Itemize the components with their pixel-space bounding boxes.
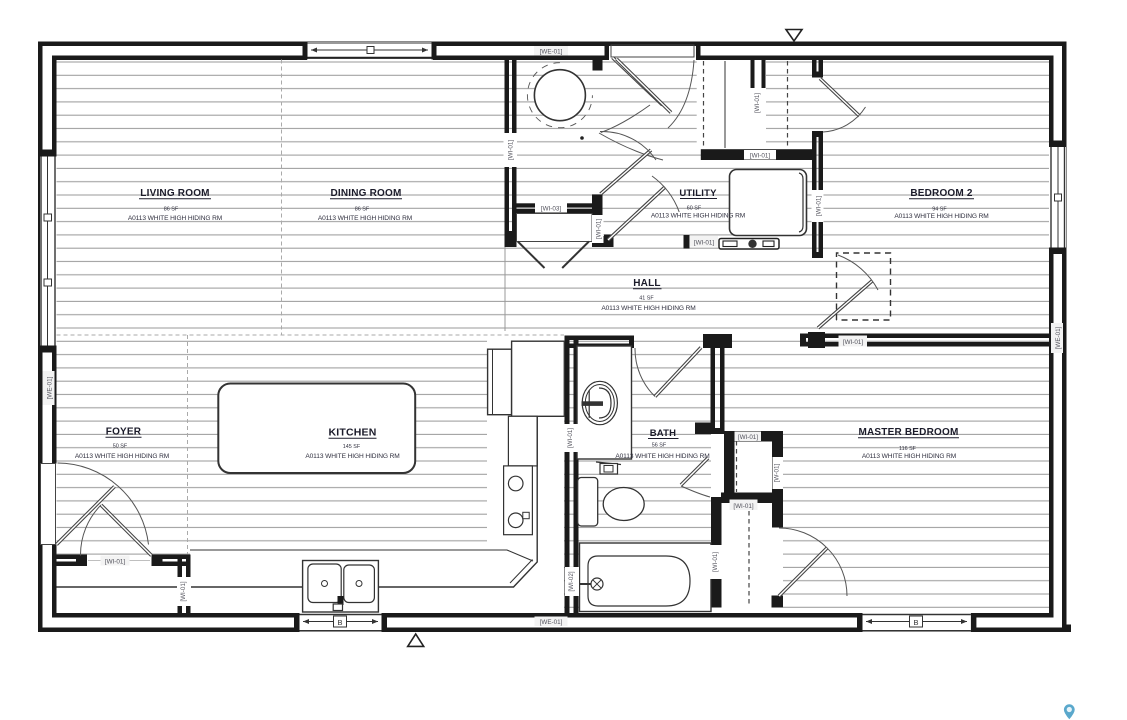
svg-text:A0113 WHITE HIGH HIDING RM: A0113 WHITE HIGH HIDING RM [75, 453, 169, 460]
svg-text:KITCHEN: KITCHEN [328, 427, 376, 439]
svg-text:A0113 WHITE HIGH HIDING RM: A0113 WHITE HIGH HIDING RM [305, 453, 399, 460]
svg-text:UTILITY: UTILITY [679, 188, 717, 199]
svg-text:A0113 WHITE HIGH HIDING RM: A0113 WHITE HIGH HIDING RM [615, 453, 709, 460]
svg-text:[WI-01]: [WI-01] [508, 140, 515, 161]
svg-text:[WI-01]: [WI-01] [567, 428, 574, 449]
svg-text:[WI-01]: [WI-01] [754, 93, 761, 114]
svg-text:[WI-01]: [WI-01] [596, 219, 603, 240]
svg-text:[WI-01]: [WI-01] [712, 552, 719, 573]
svg-text:[WI-01]: [WI-01] [750, 153, 771, 160]
svg-text:BEDROOM 2: BEDROOM 2 [910, 188, 973, 199]
svg-text:[WI-02]: [WI-02] [568, 571, 575, 592]
svg-text:[WE-01]: [WE-01] [540, 619, 563, 626]
svg-text:[WI-01]: [WI-01] [733, 503, 754, 510]
svg-text:86 SF: 86 SF [164, 207, 179, 213]
svg-text:LIVING ROOM: LIVING ROOM [140, 188, 209, 199]
svg-text:[WI-01]: [WI-01] [843, 339, 864, 346]
svg-text:A0113 WHITE HIGH HIDING RM: A0113 WHITE HIGH HIDING RM [862, 453, 956, 460]
svg-text:94 SF: 94 SF [932, 207, 947, 213]
svg-text:A0113 WHITE HIGH HIDING RM: A0113 WHITE HIGH HIDING RM [601, 305, 695, 312]
svg-text:DINING ROOM: DINING ROOM [330, 188, 401, 199]
svg-text:[WI-01]: [WI-01] [816, 196, 823, 217]
svg-text:145 SF: 145 SF [343, 444, 361, 450]
svg-text:[WE-01]: [WE-01] [1055, 326, 1062, 349]
svg-text:B: B [913, 618, 918, 627]
svg-text:[WE-01]: [WE-01] [47, 376, 54, 399]
svg-text:86 SF: 86 SF [355, 207, 370, 213]
svg-text:[WI-01]: [WI-01] [738, 434, 758, 441]
svg-text:60 SF: 60 SF [687, 206, 702, 212]
svg-text:56 SF: 56 SF [652, 443, 667, 449]
svg-text:41 SF: 41 SF [639, 296, 654, 302]
svg-text:[WI-03]: [WI-03] [541, 206, 562, 213]
svg-text:116 SF: 116 SF [899, 446, 917, 452]
svg-text:B: B [337, 618, 342, 627]
svg-text:A0113 WHITE HIGH HIDING RM: A0113 WHITE HIGH HIDING RM [894, 213, 988, 220]
svg-text:FOYER: FOYER [106, 427, 142, 438]
svg-text:MASTER BEDROOM: MASTER BEDROOM [858, 427, 958, 438]
svg-text:[W-01]: [W-01] [774, 464, 781, 483]
svg-text:[WI-01]: [WI-01] [105, 559, 126, 566]
svg-text:[WE-01]: [WE-01] [540, 49, 563, 56]
svg-text:A0113 WHITE HIGH HIDING RM: A0113 WHITE HIGH HIDING RM [318, 215, 412, 222]
svg-text:[WI-01]: [WI-01] [694, 240, 715, 247]
svg-text:BATH: BATH [650, 428, 676, 439]
svg-text:HALL: HALL [633, 278, 660, 289]
svg-text:50 SF: 50 SF [113, 444, 128, 450]
svg-text:A0113 WHITE HIGH HIDING RM: A0113 WHITE HIGH HIDING RM [651, 213, 745, 220]
svg-text:A0113 WHITE HIGH HIDING RM: A0113 WHITE HIGH HIDING RM [128, 215, 222, 222]
svg-text:[WI-01]: [WI-01] [180, 581, 187, 602]
